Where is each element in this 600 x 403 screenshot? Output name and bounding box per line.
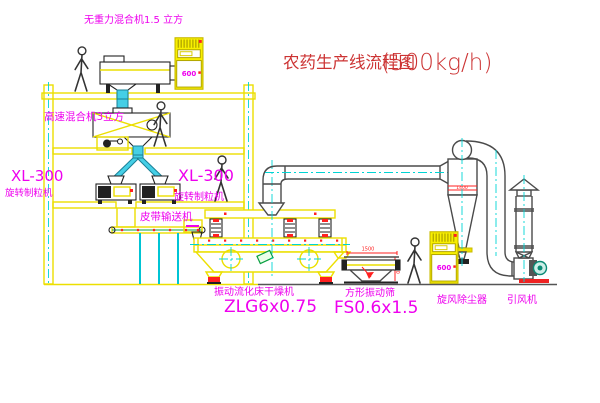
label-fan: 引风机 <box>507 293 537 306</box>
label-belt-conveyor: 皮带输送机 <box>140 210 193 223</box>
process-flow-diagram: 600 <box>0 0 600 403</box>
control-cabinet-ground: 600 <box>430 232 458 283</box>
label-cyclone: 旋风除尘器 <box>437 293 487 306</box>
label-granulator-center-name: 旋转制粒机 <box>174 190 224 203</box>
spring-mounts <box>210 219 331 237</box>
label-granulator-left-name: 旋转制粒机 <box>5 187 53 199</box>
worker-figure-top <box>75 47 88 91</box>
exhaust-duct <box>263 161 452 203</box>
granulator-left <box>96 176 136 204</box>
vibrating-screen: 1500 540 <box>334 247 400 283</box>
label-gravity-mixer: 无重力混合机1.5 立方 <box>84 13 183 26</box>
dryer-feet <box>206 272 334 284</box>
control-cabinet-top: 600 <box>175 38 203 89</box>
cabinet-display: 600 <box>182 70 197 78</box>
label-granulator-left-model: XL-300 <box>11 167 63 185</box>
screen-width-dimension: 1500 <box>362 247 375 253</box>
cabinet-display-2: 600 <box>437 264 452 272</box>
label-granulator-center-model: XL-300 <box>178 166 234 185</box>
label-dryer-model: ZLG6x0.75 <box>224 297 317 317</box>
label-screen-model: FS0.6x1.5 <box>334 298 418 318</box>
induced-draft-fan <box>514 258 549 283</box>
motor-pulley <box>103 140 111 148</box>
diagram-title-capacity: (500kg/h) <box>381 50 492 76</box>
label-speed-mixer: 高速混合机3立方 <box>44 110 124 123</box>
worker-figure-ground <box>408 238 421 283</box>
